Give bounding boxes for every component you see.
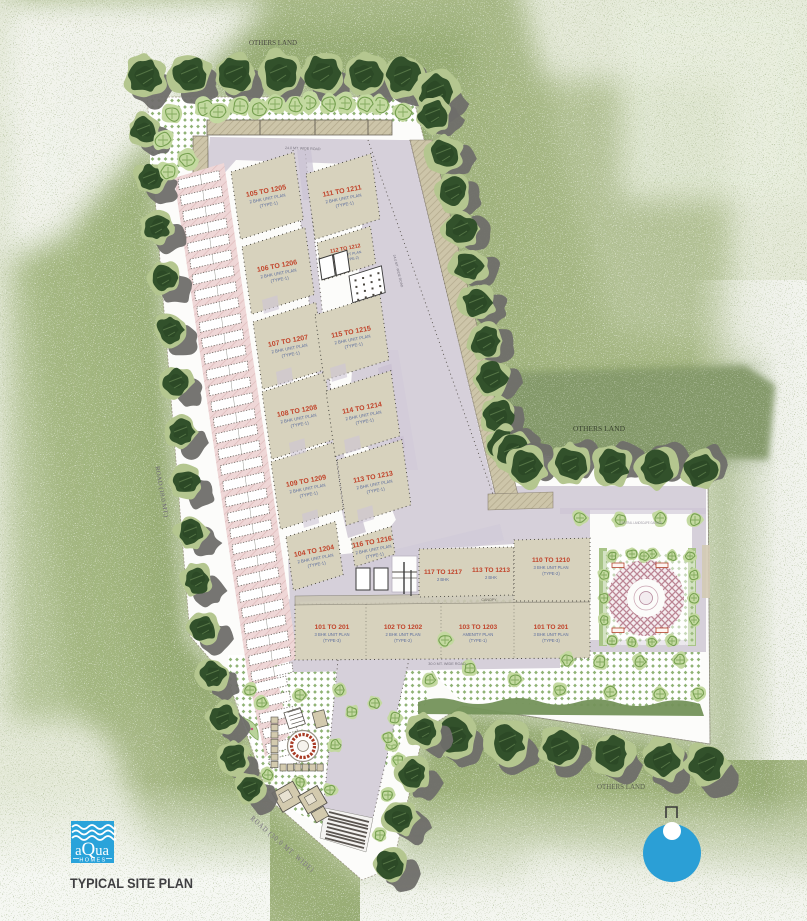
svg-text:CANOPY: CANOPY [481,598,497,602]
svg-text:OTHERS LAND: OTHERS LAND [573,425,625,433]
svg-text:101 TO 201: 101 TO 201 [534,624,569,631]
svg-text:(TYPE-1): (TYPE-1) [469,638,487,643]
svg-text:113 TO 1213: 113 TO 1213 [472,567,510,574]
svg-text:(TYPE-2): (TYPE-2) [542,571,560,576]
svg-text:2 BHK: 2 BHK [485,575,497,580]
svg-text:102 TO 1202: 102 TO 1202 [384,624,423,631]
svg-text:101 TO 201: 101 TO 201 [315,624,350,631]
svg-text:(TYPE-2): (TYPE-2) [394,638,412,643]
svg-text:3 BHK UNIT PLAN: 3 BHK UNIT PLAN [533,632,568,637]
svg-text:103 TO 1203: 103 TO 1203 [459,624,498,631]
svg-text:OTHERS LAND: OTHERS LAND [597,783,645,791]
svg-text:3 BHK UNIT PLAN: 3 BHK UNIT PLAN [533,565,568,570]
svg-text:(TYPE-3): (TYPE-3) [542,638,560,643]
svg-text:3 BHK UNIT PLAN: 3 BHK UNIT PLAN [314,632,349,637]
svg-text:HOMES: HOMES [79,858,106,864]
svg-text:TYPICAL SITE PLAN: TYPICAL SITE PLAN [70,875,193,891]
svg-text:(TYPE-3): (TYPE-3) [323,638,341,643]
svg-text:2 BHK: 2 BHK [437,577,449,582]
svg-text:117 TO 1217: 117 TO 1217 [424,569,462,576]
svg-text:110 TO 1210: 110 TO 1210 [532,557,570,564]
svg-text:CENTRAL LANDSCAPE GARDEN: CENTRAL LANDSCAPE GARDEN [620,521,662,525]
svg-text:30.0 MT. WIDE ROAD: 30.0 MT. WIDE ROAD [428,662,466,666]
svg-text:AMENITY PLAN: AMENITY PLAN [463,632,494,637]
svg-text:OTHERS LAND: OTHERS LAND [249,39,297,47]
svg-text:2 BHK UNIT PLAN: 2 BHK UNIT PLAN [385,632,420,637]
